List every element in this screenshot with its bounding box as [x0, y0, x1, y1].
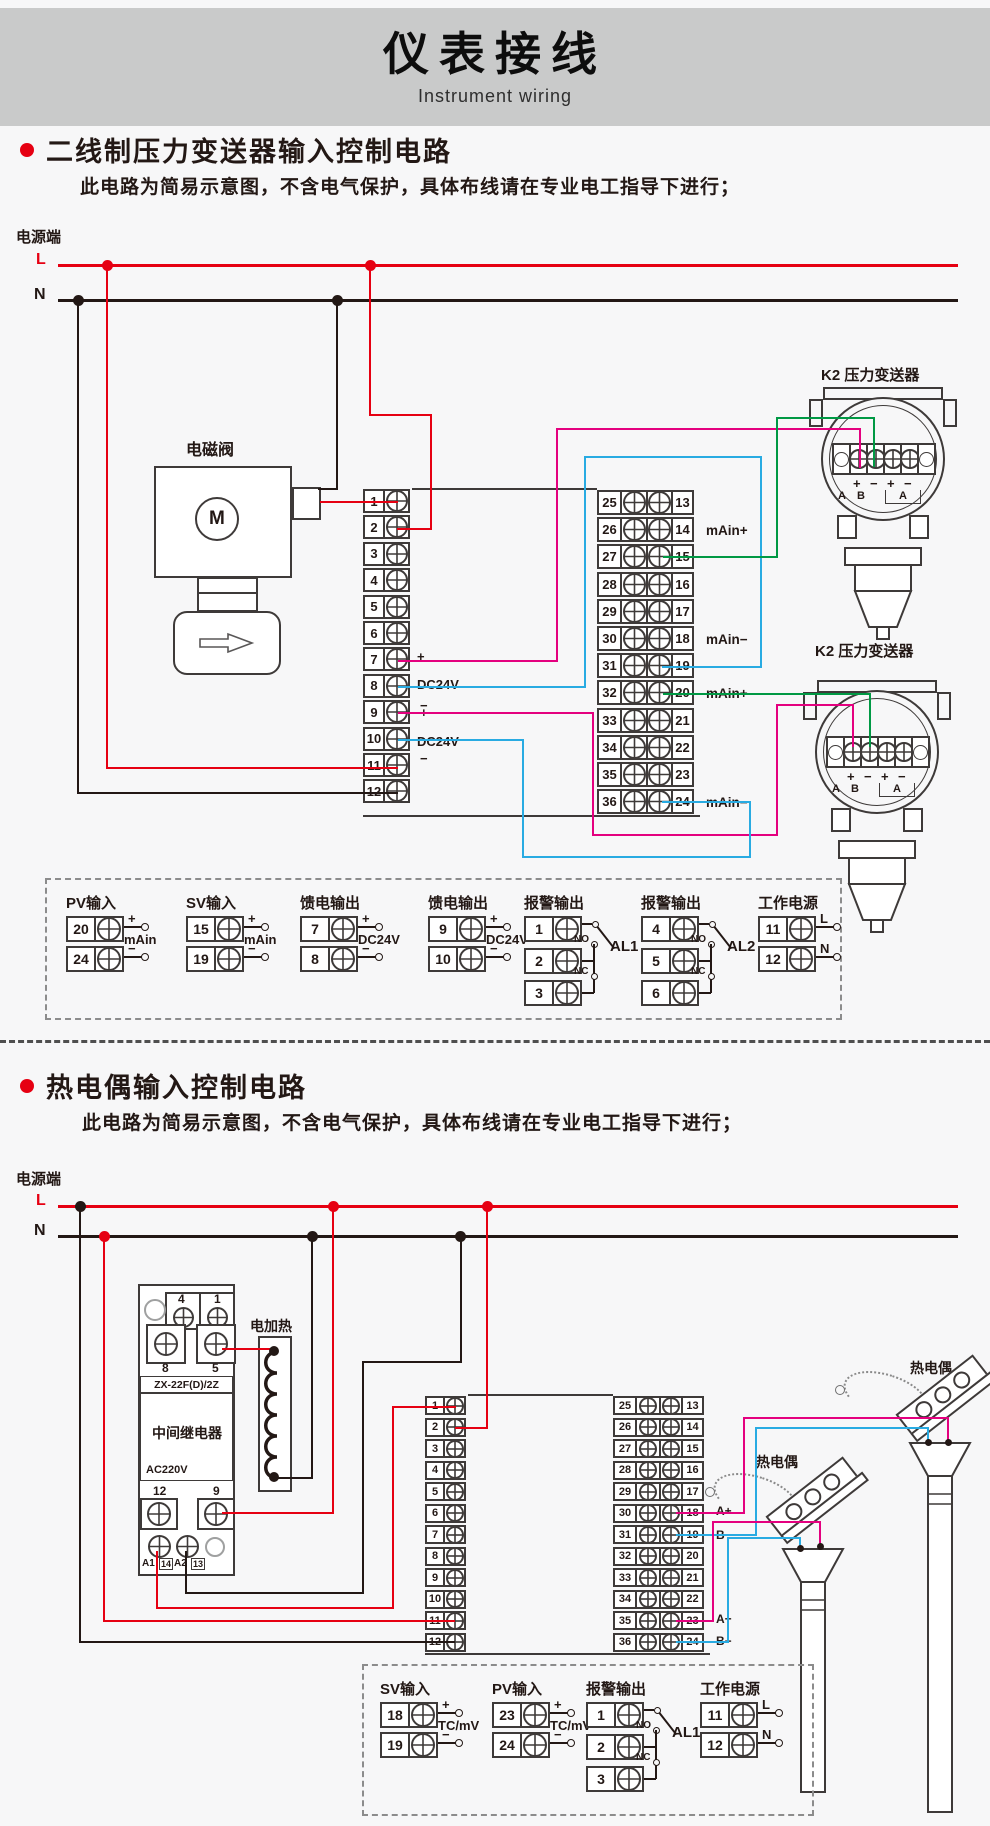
terminal-cell: 4 — [641, 916, 671, 942]
wire-segment — [58, 299, 958, 302]
terminal-cell: 3 — [425, 1439, 445, 1458]
heater-label: 电加热 — [250, 1316, 292, 1336]
junction-dot — [269, 1472, 279, 1482]
terminal-cell: 19 — [380, 1732, 410, 1758]
terminal-cell: 24 — [66, 946, 96, 972]
wire-segment — [362, 1362, 364, 1594]
section2-note: 此电路为简易示意图，不含电气保护，具体布线请在专业电工指导下进行； — [82, 1108, 742, 1135]
terminal-cell: 23 — [492, 1702, 522, 1728]
transmitter-end-hole — [919, 452, 934, 467]
thermocouple-cap-icon — [835, 1385, 845, 1395]
terminal-cell: 6 — [425, 1504, 445, 1523]
wire-end-icon — [261, 953, 269, 961]
legend-sign-label: + — [362, 911, 370, 926]
wire-segment — [124, 926, 142, 928]
screw-terminal-icon — [445, 1439, 465, 1459]
wire-segment — [676, 1512, 745, 1514]
wire-segment — [859, 428, 861, 468]
junction-dot — [797, 1545, 804, 1552]
motor-label: M — [209, 508, 225, 530]
terminal-cell: 4 — [363, 568, 385, 592]
transmitter-sign-label: − — [898, 769, 906, 784]
wire-segment — [438, 1712, 456, 1714]
terminal-cell: 32 — [597, 680, 622, 705]
wire-segment — [369, 414, 432, 416]
wire-segment — [755, 1427, 757, 1536]
section1-bullet-icon — [20, 143, 34, 157]
section2-title: 热电偶输入控制电路 — [46, 1066, 307, 1105]
wire-end-icon — [141, 953, 149, 961]
legend-group-title: PV输入 — [66, 892, 116, 913]
wire-segment — [644, 1746, 656, 1748]
wire-segment — [332, 1205, 334, 1513]
screw-terminal-icon — [730, 1732, 756, 1758]
terminal-cell: 25 — [613, 1396, 637, 1415]
wire-end-icon — [503, 953, 511, 961]
transmitter-sub-label: A — [879, 783, 915, 797]
wire-segment — [103, 1620, 455, 1622]
solenoid-connector — [292, 487, 321, 520]
nc-contact-icon — [591, 973, 598, 980]
terminal-cell: 30 — [613, 1504, 637, 1523]
screw-terminal-icon — [216, 946, 242, 972]
screw-terminal-icon — [647, 708, 672, 733]
transmitter-sub-label: A — [838, 490, 846, 502]
no-label: NO — [636, 1720, 651, 1731]
terminal-cell: 34 — [613, 1590, 637, 1609]
terminal-cell: 6 — [641, 980, 671, 1006]
nc-label: NC — [636, 1752, 650, 1763]
wire-segment — [663, 693, 871, 695]
terminal-cell: 26 — [597, 517, 622, 542]
terminal-cell: 5 — [363, 595, 385, 619]
terminal-cell: 10 — [425, 1590, 445, 1609]
terminal-cell: 10 — [363, 727, 385, 751]
terminal-cell: 1 — [524, 916, 554, 942]
wire-segment — [58, 1205, 958, 1208]
terminal-cell: 20 — [66, 916, 96, 942]
wire-segment — [676, 1620, 714, 1622]
wire-segment — [710, 944, 712, 993]
terminal-cell: 27 — [613, 1439, 637, 1458]
screw-terminal-icon — [203, 1501, 229, 1527]
legend-mid-label: TC/mV — [438, 1718, 479, 1733]
screw-terminal-icon — [445, 1568, 465, 1588]
wire-segment — [663, 556, 778, 558]
wire-segment — [398, 686, 586, 688]
wire-segment — [869, 693, 871, 747]
wire-segment — [468, 1394, 613, 1396]
section-divider — [0, 1040, 990, 1043]
legend-sign-label: + — [490, 911, 498, 926]
terminal-cell: 2 — [586, 1734, 616, 1760]
terminal-cell: 28 — [613, 1461, 637, 1480]
transmitter-sign-label: − — [864, 769, 872, 784]
legend-sign-label: + — [128, 911, 136, 926]
terminal-cell: 21 — [681, 1568, 704, 1587]
terminal-cell: 15 — [186, 916, 216, 942]
terminal-cell: 29 — [613, 1482, 637, 1501]
legend-group-title: 报警输出 — [586, 1678, 646, 1699]
screw-terminal-icon — [671, 980, 697, 1006]
screw-terminal-icon — [661, 1439, 681, 1459]
screw-terminal-icon — [638, 1589, 658, 1609]
terminal-cell: 7 — [300, 916, 330, 942]
legend-mid-label: mAin — [244, 932, 277, 947]
screw-terminal-icon — [445, 1482, 465, 1502]
junction-dot — [332, 295, 343, 306]
wire-segment — [199, 592, 256, 594]
wire-segment — [369, 264, 371, 416]
relay-terminal-label: 5 — [212, 1361, 219, 1375]
wire-segment — [776, 417, 778, 558]
wire-segment — [582, 992, 594, 994]
relay-name-label: 中间继电器 — [152, 1423, 222, 1443]
screw-terminal-icon — [622, 789, 647, 814]
wire-segment — [550, 1712, 568, 1714]
legend-group-title: SV输入 — [186, 892, 236, 913]
wire-segment — [712, 1521, 821, 1523]
screw-terminal-icon — [622, 653, 647, 678]
wire-segment — [156, 1551, 158, 1609]
relay-terminal-label: 8 — [162, 1361, 169, 1375]
screw-terminal-icon — [175, 1534, 200, 1559]
screw-terminal-icon — [638, 1503, 658, 1523]
screw-terminal-icon — [638, 1460, 658, 1480]
screw-terminal-icon — [661, 1460, 681, 1480]
terminal-cell: 23 — [671, 762, 694, 787]
wire-segment — [556, 428, 861, 430]
screw-terminal-icon — [445, 1503, 465, 1523]
relay-lamp-icon — [205, 1537, 225, 1557]
wire-segment — [58, 264, 958, 267]
terminal-cell: 1 — [586, 1702, 616, 1728]
wire-segment — [106, 767, 398, 769]
terminal-cell: 13 — [681, 1396, 704, 1415]
terminal-cell: 17 — [671, 599, 694, 624]
wire-segment — [592, 712, 594, 836]
screw-terminal-icon — [410, 1732, 436, 1758]
legend-sign-label: + — [248, 911, 256, 926]
wire-segment — [273, 1477, 313, 1479]
legend-group-title: PV输入 — [492, 1678, 542, 1699]
terminal-cell: 12 — [700, 1732, 730, 1758]
wire-segment — [77, 299, 79, 794]
wire-segment — [699, 992, 711, 994]
wire-segment — [727, 1537, 729, 1643]
wire-segment — [727, 1537, 801, 1539]
screw-terminal-icon — [622, 762, 647, 787]
wire-segment — [392, 1406, 456, 1408]
terminal-cell: 36 — [597, 789, 622, 814]
transmitter-sign-label: − — [870, 476, 878, 491]
solenoid-label: 电磁阀 — [186, 436, 234, 460]
screw-terminal-icon — [153, 1331, 179, 1357]
wire-segment — [712, 1521, 714, 1622]
screw-terminal-icon — [330, 946, 356, 972]
screw-terminal-icon — [638, 1632, 658, 1652]
terminal-cell: 34 — [597, 735, 622, 760]
transmitter-label: K2 压力变送器 — [821, 364, 919, 385]
junction-dot — [945, 1439, 952, 1446]
wire-segment — [185, 1592, 364, 1594]
screw-terminal-icon — [385, 753, 409, 777]
power-terminal-label-2: 电源端 — [16, 1168, 61, 1189]
relay-model-bar: ZX-22F(D)/2Z — [140, 1376, 233, 1393]
screw-terminal-icon — [622, 735, 647, 760]
wire-segment — [852, 704, 854, 747]
section1-note: 此电路为简易示意图，不含电气保护，具体布线请在专业电工指导下进行； — [80, 172, 740, 199]
wire-segment — [455, 1427, 488, 1429]
wire-end-icon — [455, 1739, 463, 1747]
screw-terminal-icon — [216, 916, 242, 942]
wire-segment — [743, 1417, 949, 1419]
thermocouple-cap-icon — [705, 1487, 715, 1497]
terminal-cell: 14 — [681, 1418, 704, 1437]
screw-terminal-icon — [788, 946, 814, 972]
transmitter-sign-label: + — [847, 769, 855, 784]
wire-segment — [699, 923, 709, 925]
terminal-cell: 22 — [671, 735, 694, 760]
terminal-cell: 9 — [363, 700, 385, 724]
screw-terminal-icon — [622, 490, 647, 515]
flow-arrow-icon — [194, 630, 258, 656]
junction-dot — [482, 1201, 493, 1212]
junction-dot — [817, 1543, 824, 1550]
transmitter-stem — [843, 547, 923, 647]
terminal-cell: 8 — [363, 674, 385, 698]
terminal-cell: 2 — [363, 515, 385, 539]
wire-segment — [320, 501, 398, 503]
wire-segment — [522, 856, 751, 858]
wire-segment — [244, 926, 262, 928]
relay-lamp-icon — [144, 1299, 166, 1321]
screw-terminal-icon — [385, 621, 409, 645]
wire-segment — [398, 660, 558, 662]
junction-dot — [73, 295, 84, 306]
screw-terminal-icon — [638, 1417, 658, 1437]
main-signal-label: mAin− — [706, 632, 748, 647]
wire-segment — [816, 926, 834, 928]
wire-end-icon — [833, 953, 841, 961]
screw-terminal-icon — [647, 626, 672, 651]
no-label: NO — [574, 934, 589, 945]
terminal-cell: 36 — [613, 1633, 637, 1652]
live-label-2: L — [36, 1192, 46, 1210]
legend-group-title: 报警输出 — [641, 892, 701, 913]
screw-terminal-icon — [647, 490, 672, 515]
terminal-cell: 6 — [363, 621, 385, 645]
wire-segment — [584, 456, 762, 458]
wire-segment — [584, 456, 586, 688]
transmitter-tab — [803, 692, 817, 720]
wire-end-icon — [567, 1709, 575, 1717]
screw-terminal-icon — [96, 946, 122, 972]
terminal-cell: 5 — [425, 1482, 445, 1501]
terminal-cell: 2 — [425, 1418, 445, 1437]
screw-terminal-icon — [647, 572, 672, 597]
screw-terminal-icon — [638, 1482, 658, 1502]
wire-segment — [412, 488, 597, 490]
wire-end-icon — [775, 1739, 783, 1747]
wire-segment — [425, 1653, 710, 1655]
terminal-cell: 3 — [524, 980, 554, 1006]
terminal-cell: 16 — [671, 572, 694, 597]
screw-terminal-icon — [146, 1501, 172, 1527]
screw-terminal-icon — [458, 946, 484, 972]
legend-group-title: 工作电源 — [700, 1678, 760, 1699]
screw-terminal-icon — [616, 1766, 642, 1792]
wire-segment — [699, 960, 711, 962]
terminal-cell: 7 — [363, 647, 385, 671]
terminal-cell: 25 — [597, 490, 622, 515]
legend-mid-label: DC24V — [486, 932, 528, 947]
wire-segment — [676, 1641, 729, 1643]
transmitter-sign-label: + — [853, 476, 861, 491]
wire-end-icon — [567, 1739, 575, 1747]
screw-terminal-icon — [458, 916, 484, 942]
wire-segment — [362, 1361, 462, 1363]
main-signal-label: mAin+ — [706, 523, 748, 538]
relay-terminal-label: 4 — [178, 1292, 185, 1306]
outline-box — [197, 577, 258, 612]
heater-coil-icon — [260, 1338, 290, 1490]
legend-group-title: 工作电源 — [758, 892, 818, 913]
wire-segment — [185, 1551, 187, 1594]
terminal-cell: 14 — [671, 517, 694, 542]
screw-terminal-icon — [638, 1525, 658, 1545]
relay-terminal-label: 12 — [153, 1484, 166, 1498]
nc-contact-icon — [653, 1759, 660, 1766]
wire-segment — [156, 1607, 394, 1609]
transmitter-foot — [909, 515, 929, 539]
junction-dot — [365, 260, 376, 271]
wire-segment — [77, 792, 398, 794]
wire-segment — [758, 1712, 776, 1714]
wire-end-icon — [833, 923, 841, 931]
wire-segment — [550, 1742, 568, 1744]
screw-terminal-icon — [638, 1611, 658, 1631]
wire-segment — [486, 1205, 488, 1428]
wire-segment — [103, 1235, 105, 1621]
wire-end-icon — [775, 1709, 783, 1717]
wire-segment — [755, 1427, 929, 1429]
terminal-cell: 10 — [428, 946, 458, 972]
terminal-cell: 12 — [758, 946, 788, 972]
screw-terminal-icon — [622, 517, 647, 542]
terminal-cell: 11 — [758, 916, 788, 942]
wire-segment — [644, 1778, 656, 1780]
section2-bullet-icon — [20, 1079, 34, 1093]
legend-sign-label: + — [554, 1697, 562, 1712]
wire-segment — [873, 417, 875, 467]
wire-segment — [79, 1205, 81, 1642]
screw-terminal-icon — [661, 1589, 681, 1609]
transmitter-sign-label: + — [881, 769, 889, 784]
screw-terminal-icon — [445, 1525, 465, 1545]
wire-segment — [556, 428, 558, 662]
legend-mid-label: TC/mV — [550, 1718, 591, 1733]
wire-segment — [318, 488, 338, 490]
wire-segment — [222, 1512, 334, 1514]
screw-terminal-icon — [96, 916, 122, 942]
wire-segment — [460, 1235, 462, 1363]
wire-segment — [430, 414, 432, 530]
wire-segment — [662, 666, 762, 668]
screw-terminal-icon — [522, 1732, 548, 1758]
terminal-cell: 18 — [671, 626, 694, 651]
terminal-cell: 11 — [363, 753, 385, 777]
terminal-cell: 31 — [613, 1525, 637, 1544]
relay-terminal-label: 9 — [213, 1484, 220, 1498]
screw-terminal-icon — [638, 1546, 658, 1566]
junction-dot — [75, 1201, 86, 1212]
wire-segment — [582, 923, 592, 925]
screw-terminal-icon — [147, 1534, 172, 1559]
wire-segment — [743, 1417, 745, 1514]
wire-segment — [392, 1407, 394, 1609]
terminal-cell: 20 — [681, 1547, 704, 1566]
legend-group-title: 馈电输出 — [300, 892, 360, 913]
terminal-cell: 35 — [597, 762, 622, 787]
live-label-1: L — [36, 251, 46, 269]
screw-terminal-icon — [622, 599, 647, 624]
terminal-cell: 5 — [641, 948, 671, 974]
terminal-cell: 4 — [425, 1461, 445, 1480]
terminal-cell: 15 — [681, 1439, 704, 1458]
screw-terminal-icon — [385, 542, 409, 566]
terminal-cell: 8 — [425, 1547, 445, 1566]
terminal-cell: 32 — [613, 1547, 637, 1566]
legend-sign-label: + — [442, 1697, 450, 1712]
junction-dot — [307, 1231, 318, 1242]
relay-coil-label: 14 — [159, 1558, 173, 1570]
screw-terminal-icon — [661, 1417, 681, 1437]
transmitter-sub-label: A — [832, 783, 840, 795]
wire-segment — [244, 956, 262, 958]
wire-segment — [776, 704, 854, 706]
wire-segment — [106, 264, 108, 769]
wire-segment — [486, 956, 504, 958]
relay-terminal-label: 1 — [214, 1292, 221, 1306]
terminal-cell: 7 — [425, 1525, 445, 1544]
wire-segment — [358, 956, 376, 958]
wire-segment — [776, 704, 778, 836]
screw-terminal-icon — [622, 626, 647, 651]
terminal-cell: 2 — [524, 948, 554, 974]
terminal-cell: 24 — [492, 1732, 522, 1758]
terminal-cell: 31 — [597, 653, 622, 678]
terminal-cell: 9 — [425, 1568, 445, 1587]
transmitter-sub-label: B — [857, 490, 865, 502]
screw-terminal-icon — [385, 568, 409, 592]
wire-segment — [79, 1641, 455, 1643]
screw-terminal-icon — [445, 1460, 465, 1480]
transmitter-tab — [943, 399, 957, 427]
terminal-cell: 30 — [597, 626, 622, 651]
screw-terminal-icon — [647, 762, 672, 787]
wire-segment — [58, 1235, 958, 1238]
wire-end-icon — [455, 1709, 463, 1717]
alarm-name-label: AL2 — [727, 938, 755, 955]
wire-segment — [760, 456, 762, 668]
screw-terminal-icon — [554, 980, 580, 1006]
wire-segment — [758, 1742, 776, 1744]
terminal-cell: 33 — [613, 1568, 637, 1587]
transmitter-sign-label: + — [887, 476, 895, 491]
page-subtitle: Instrument wiring — [0, 86, 990, 107]
wire-segment — [398, 739, 524, 741]
